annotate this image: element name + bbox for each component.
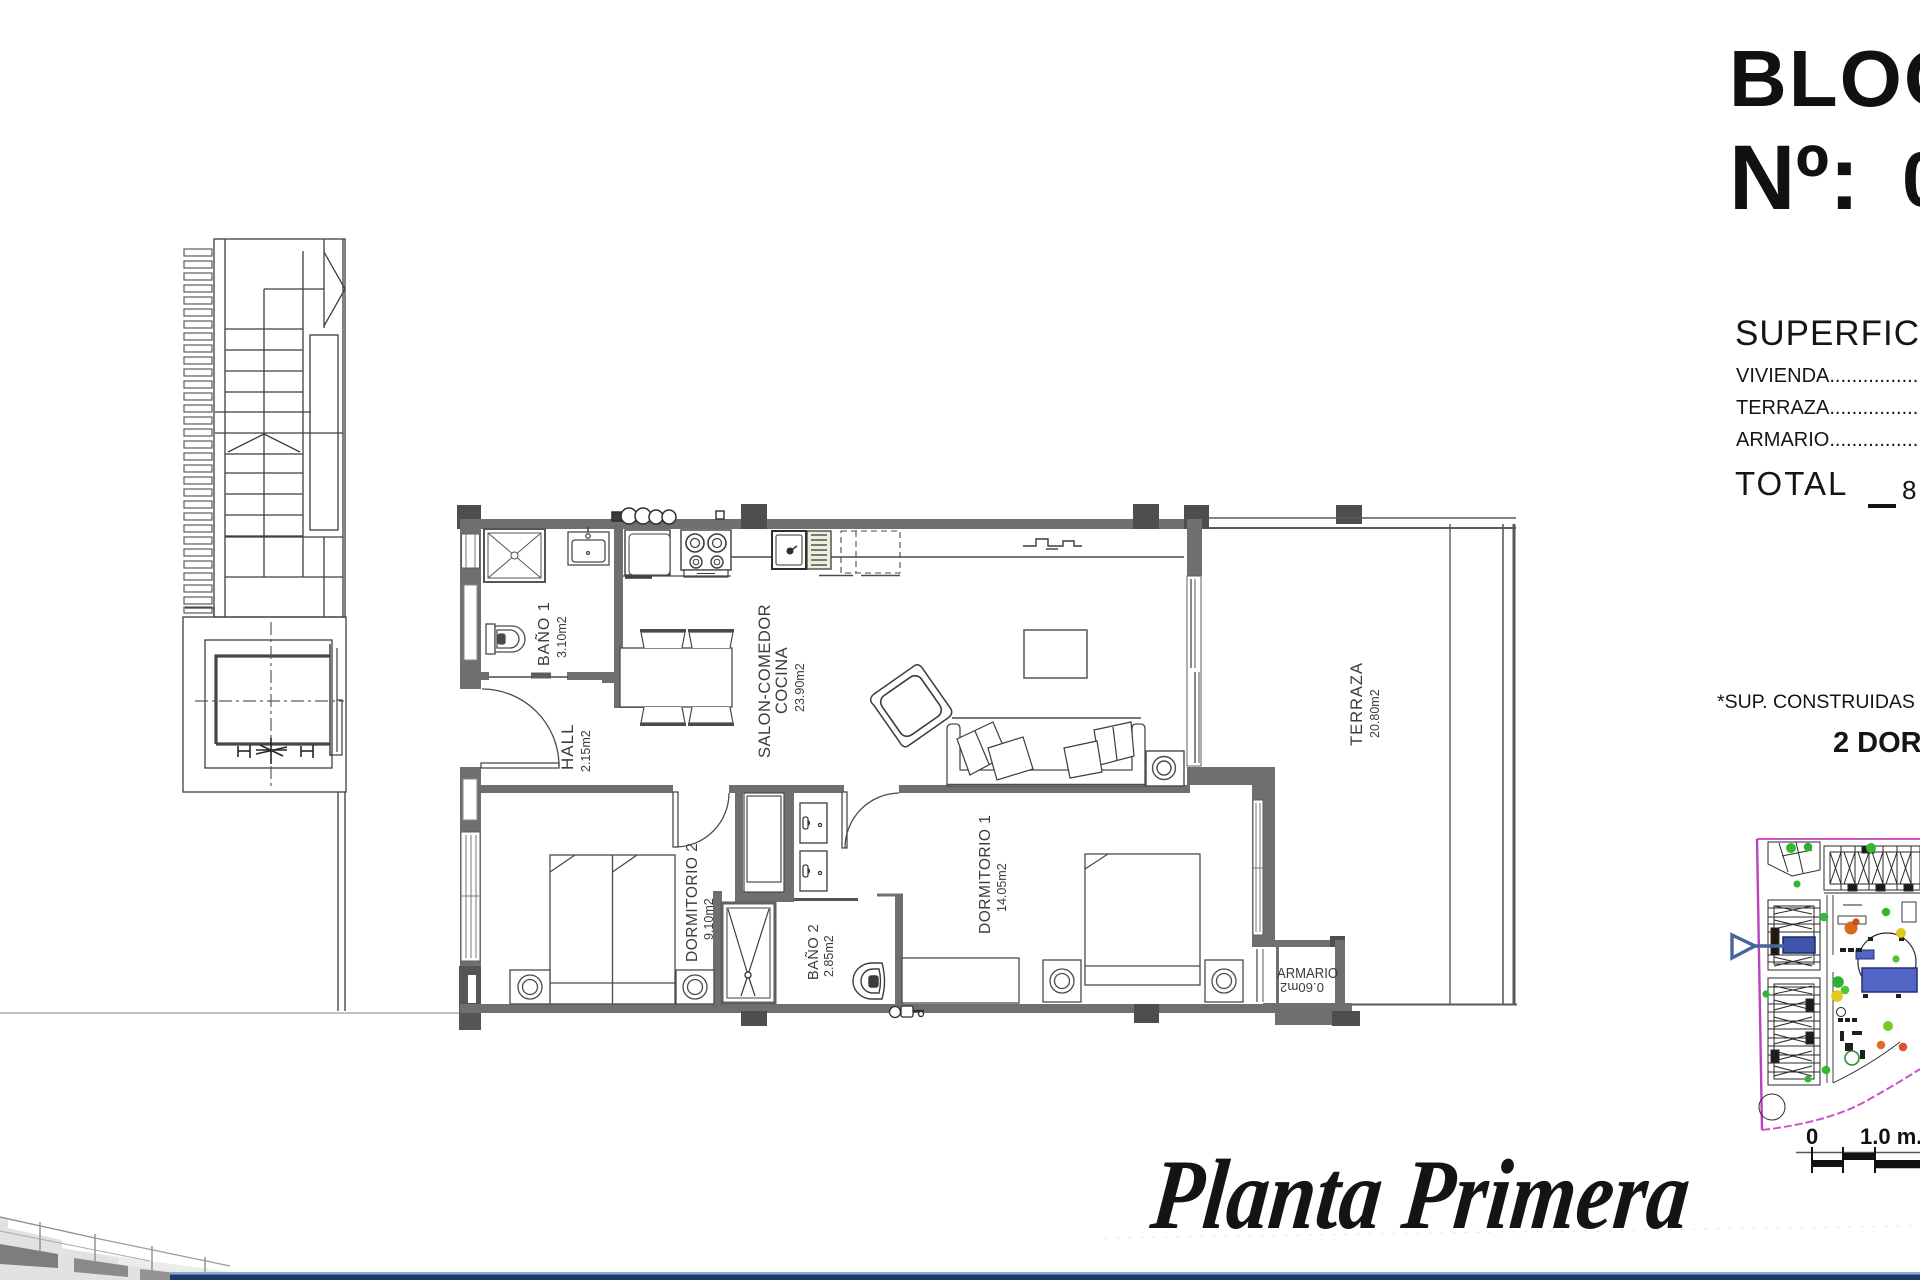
svg-text:TOTAL: TOTAL [1735,465,1848,502]
svg-text:Planta Primera: Planta Primera [1146,1139,1695,1250]
svg-text:VIVIENDA....................: VIVIENDA.................... [1736,365,1920,387]
svg-text:TERRAZA: TERRAZA [1348,662,1366,746]
svg-text:SUPERFICIES: SUPERFICIES [1735,314,1920,353]
svg-text:HALL: HALL [558,723,577,770]
svg-text:14.05m2: 14.05m2 [995,863,1009,912]
svg-text:1.0 m.: 1.0 m. [1860,1124,1920,1149]
svg-text:BAÑO 1: BAÑO 1 [533,601,553,666]
svg-text:23.90m2: 23.90m2 [793,663,807,712]
svg-text:8: 8 [1902,475,1916,505]
svg-text:TERRAZA.....................: TERRAZA..................... [1736,397,1920,419]
svg-text:0: 0 [1806,1124,1818,1149]
svg-text:Nº:: Nº: [1729,127,1860,229]
svg-text:2 DORM.: 2 DORM. [1833,727,1920,759]
svg-text:BAÑO 2: BAÑO 2 [805,924,822,980]
svg-text:ARMARIO....................: ARMARIO.................... [1736,429,1920,451]
svg-text:0.60m2: 0.60m2 [1280,980,1324,994]
svg-text:BLOQUE: BLOQUE [1729,34,1920,123]
svg-text:20.80m2: 20.80m2 [1368,689,1382,738]
svg-text:COCINA: COCINA [773,647,791,714]
svg-text:ARMARIO: ARMARIO [1277,965,1338,982]
svg-text:2.85m2: 2.85m2 [822,935,836,977]
svg-text:2.15m2: 2.15m2 [579,730,593,772]
svg-text:0: 0 [1902,135,1920,223]
svg-text:DORMITORIO 2: DORMITORIO 2 [684,843,701,962]
svg-text:*SUP. CONSTRUIDAS CON P.: *SUP. CONSTRUIDAS CON P. [1717,691,1920,713]
svg-text:9.10m2: 9.10m2 [702,898,716,940]
svg-text:DORMITORIO 1: DORMITORIO 1 [977,815,994,934]
svg-text:SALON-COMEDOR: SALON-COMEDOR [756,604,774,758]
svg-text:3.10m2: 3.10m2 [555,616,569,658]
